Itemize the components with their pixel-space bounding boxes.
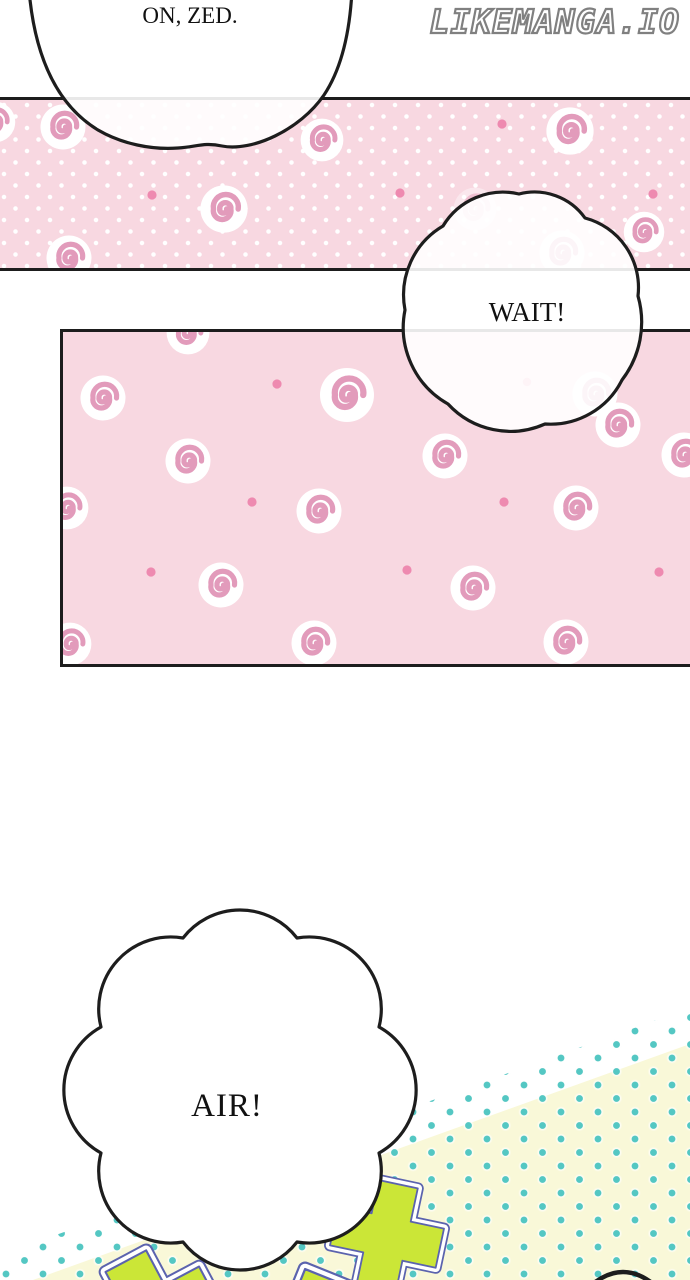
halftone-dot-grid: [0, 1000, 690, 1280]
site-watermark: LIKEMANGA.IO: [430, 2, 680, 41]
wait-bubble-text: WAIT!: [427, 297, 627, 328]
polka-dot-banner: [0, 97, 690, 271]
manga-page: LIKEMANGA.IO ON, ZED. WAIT! AIR!: [0, 0, 690, 1280]
pink-swirl-panel: [60, 329, 690, 667]
air-bubble-text: AIR!: [127, 1088, 327, 1125]
top-bubble-text: ON, ZED.: [90, 3, 290, 29]
